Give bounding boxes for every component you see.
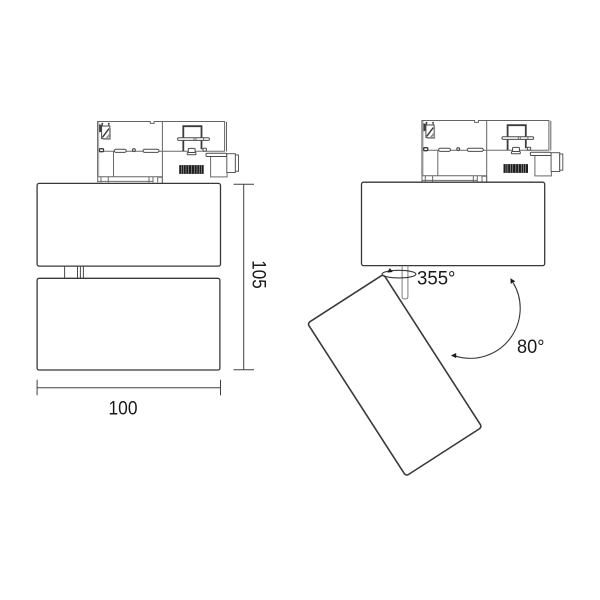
- svg-text:80°: 80°: [517, 336, 545, 358]
- svg-text:355°: 355°: [417, 267, 456, 289]
- svg-text:100: 100: [109, 397, 138, 419]
- svg-text:105: 105: [248, 260, 270, 289]
